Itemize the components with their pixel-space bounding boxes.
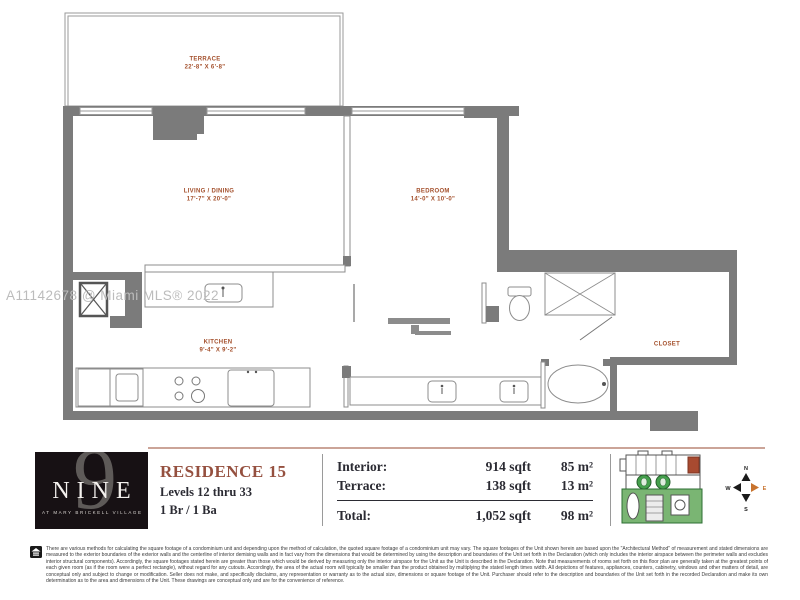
living-dining-label: LIVING / DINING 17'-7" X 20'-0" (184, 189, 235, 204)
divider-1 (322, 454, 323, 526)
area-label: Interior: (337, 457, 429, 476)
area-stats-table: Interior: 914 sqft 85 m² Terrace: 138 sq… (337, 457, 593, 525)
area-sqm: 13 m² (531, 476, 593, 495)
table-row-total: Total: 1,052 sqft 98 m² (337, 506, 593, 525)
room-name: CLOSET (654, 341, 680, 349)
area-sqm: 98 m² (531, 506, 593, 525)
room-name: TERRACE (185, 57, 226, 65)
room-name: KITCHEN (199, 340, 236, 348)
totals-rule (337, 500, 593, 501)
area-label: Total: (337, 506, 429, 525)
area-sqft: 914 sqft (429, 457, 531, 476)
interior-partitions (342, 116, 499, 407)
kitchen-appliances (76, 368, 310, 407)
room-name: BEDROOM (411, 189, 455, 197)
windows (80, 108, 464, 115)
bedroom-label: BEDROOM 14'-0" X 10'-0" (411, 189, 455, 204)
area-sqft: 138 sqft (429, 476, 531, 495)
legal-disclaimer: There are various methods for calculatin… (46, 546, 768, 584)
logo-tagline: AT MARY BRICKELL VILLAGE (35, 510, 148, 515)
equal-housing-icon (30, 546, 42, 558)
kitchen-label: KITCHEN 9'-4" X 9'-2" (199, 340, 236, 355)
room-dims: 14'-0" X 10'-0" (411, 196, 455, 204)
room-name: LIVING / DINING (184, 189, 235, 197)
nine-logo: 9 NINE AT MARY BRICKELL VILLAGE (35, 452, 148, 529)
residence-levels: Levels 12 thru 33 (160, 485, 286, 500)
room-dims: 17'-7" X 20'-0" (184, 196, 235, 204)
area-label: Terrace: (337, 476, 429, 495)
highlighted-unit (688, 457, 699, 473)
compass-north-arrow (742, 473, 751, 481)
table-row: Terrace: 138 sqft 13 m² (337, 476, 593, 495)
terrace-label: TERRACE 22'-8" X 6'-8" (185, 57, 226, 72)
residence-title: RESIDENCE 15 (160, 462, 286, 482)
closet-label: CLOSET (654, 341, 680, 349)
residence-info: RESIDENCE 15 Levels 12 thru 33 1 Br / 1 … (160, 462, 286, 518)
pool (627, 493, 639, 519)
compass-east-label: E (763, 486, 767, 492)
floor-plan-drawing (0, 0, 800, 445)
compass-north-label: N (744, 466, 748, 472)
divider-2 (610, 454, 611, 526)
room-dims: 22'-8" X 6'-8" (185, 64, 226, 72)
room-dims: 9'-4" X 9'-2" (199, 347, 236, 355)
floor-plan-sheet: TERRACE 22'-8" X 6'-8" LIVING / DINING 1… (0, 0, 800, 600)
bedroom-furniture (388, 318, 451, 335)
residence-beds-baths: 1 Br / 1 Ba (160, 503, 286, 518)
compass-west-label: W (725, 486, 731, 492)
compass-east-arrow (751, 483, 759, 492)
compass-south-label: S (744, 507, 748, 513)
building-keyplan (618, 449, 714, 529)
table-row: Interior: 914 sqft 85 m² (337, 457, 593, 476)
logo-brand-name: NINE (35, 478, 148, 505)
area-sqm: 85 m² (531, 457, 593, 476)
compass-south-arrow (742, 494, 751, 502)
area-sqft: 1,052 sqft (429, 506, 531, 525)
mls-watermark: A11142678 @ Miami MLS® 2022 (6, 288, 219, 303)
compass-west-arrow (733, 483, 741, 492)
compass-icon: N S W E (722, 462, 770, 514)
